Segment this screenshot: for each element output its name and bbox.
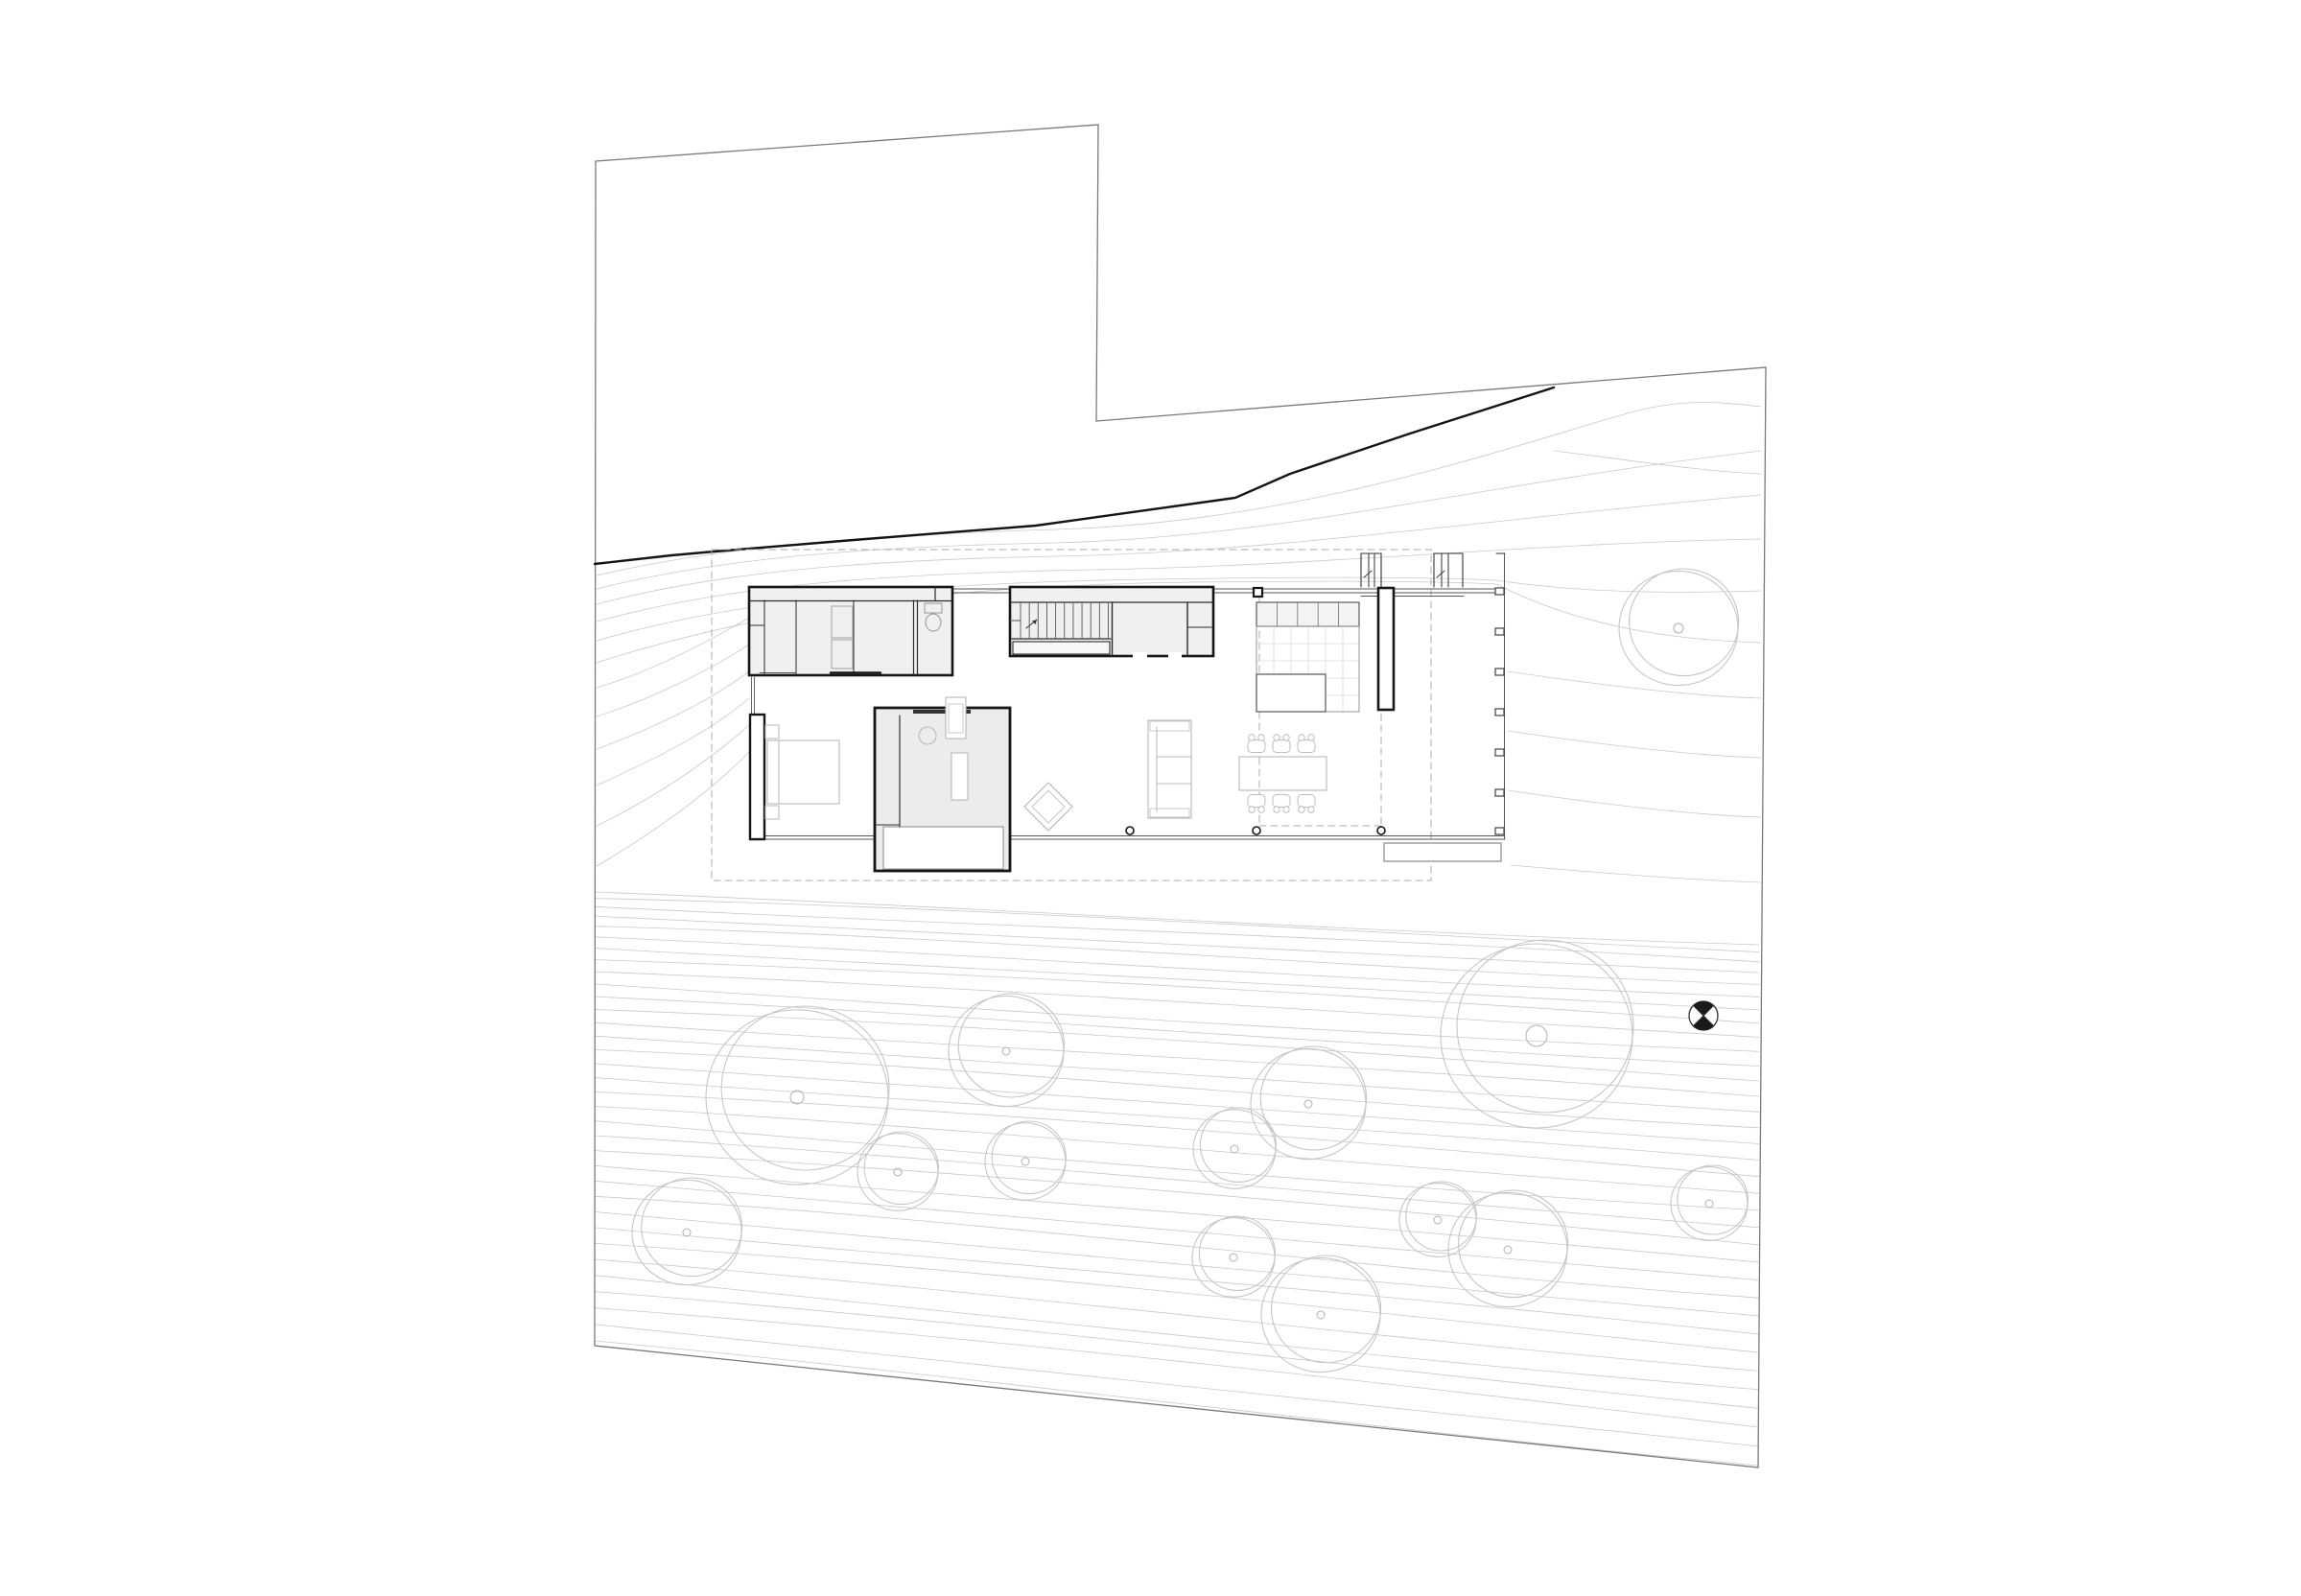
- site-plan-drawing: [0, 0, 2301, 1596]
- dining-chairs: [1248, 735, 1315, 812]
- deck-posts: [1495, 588, 1504, 834]
- site-plan-page: [0, 0, 2301, 1596]
- contour-west: [597, 618, 749, 866]
- furniture: [765, 697, 1327, 831]
- trees: [632, 569, 1748, 1373]
- contour-field: [595, 892, 1759, 1466]
- benchmark: [1689, 1001, 1718, 1030]
- house-blocks: [749, 587, 1394, 871]
